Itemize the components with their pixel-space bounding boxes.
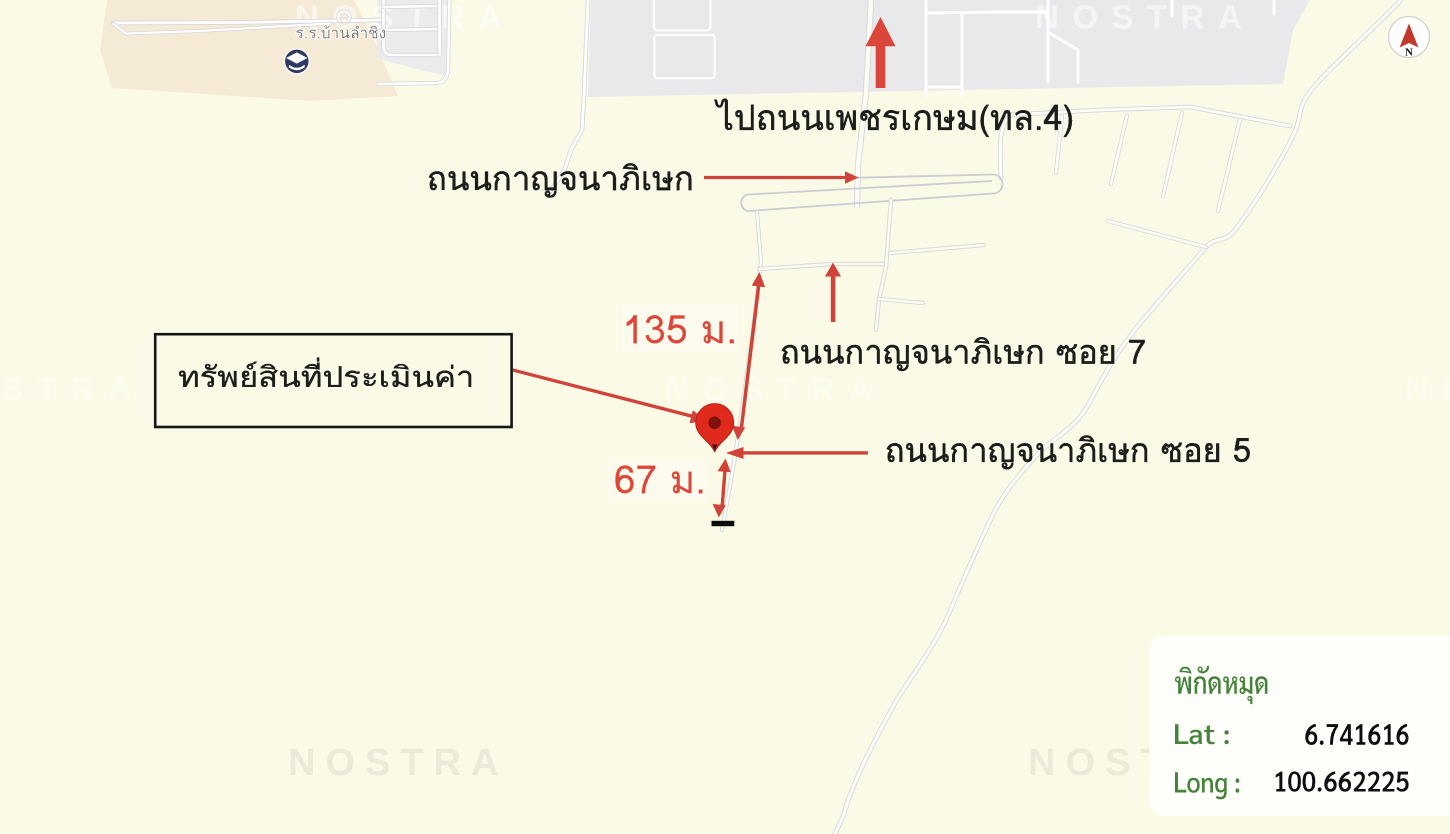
svg-text:N: N bbox=[1405, 47, 1413, 59]
svg-text:NOSTRA: NOSTRA bbox=[665, 371, 885, 408]
svg-text:NOSTRA: NOSTRA bbox=[288, 742, 508, 784]
svg-text:NOSTRA: NOSTRA bbox=[1035, 0, 1255, 36]
svg-text:NOSTRA: NOSTRA bbox=[0, 371, 145, 408]
svg-text:NOSTRA: NOSTRA bbox=[1405, 371, 1450, 408]
